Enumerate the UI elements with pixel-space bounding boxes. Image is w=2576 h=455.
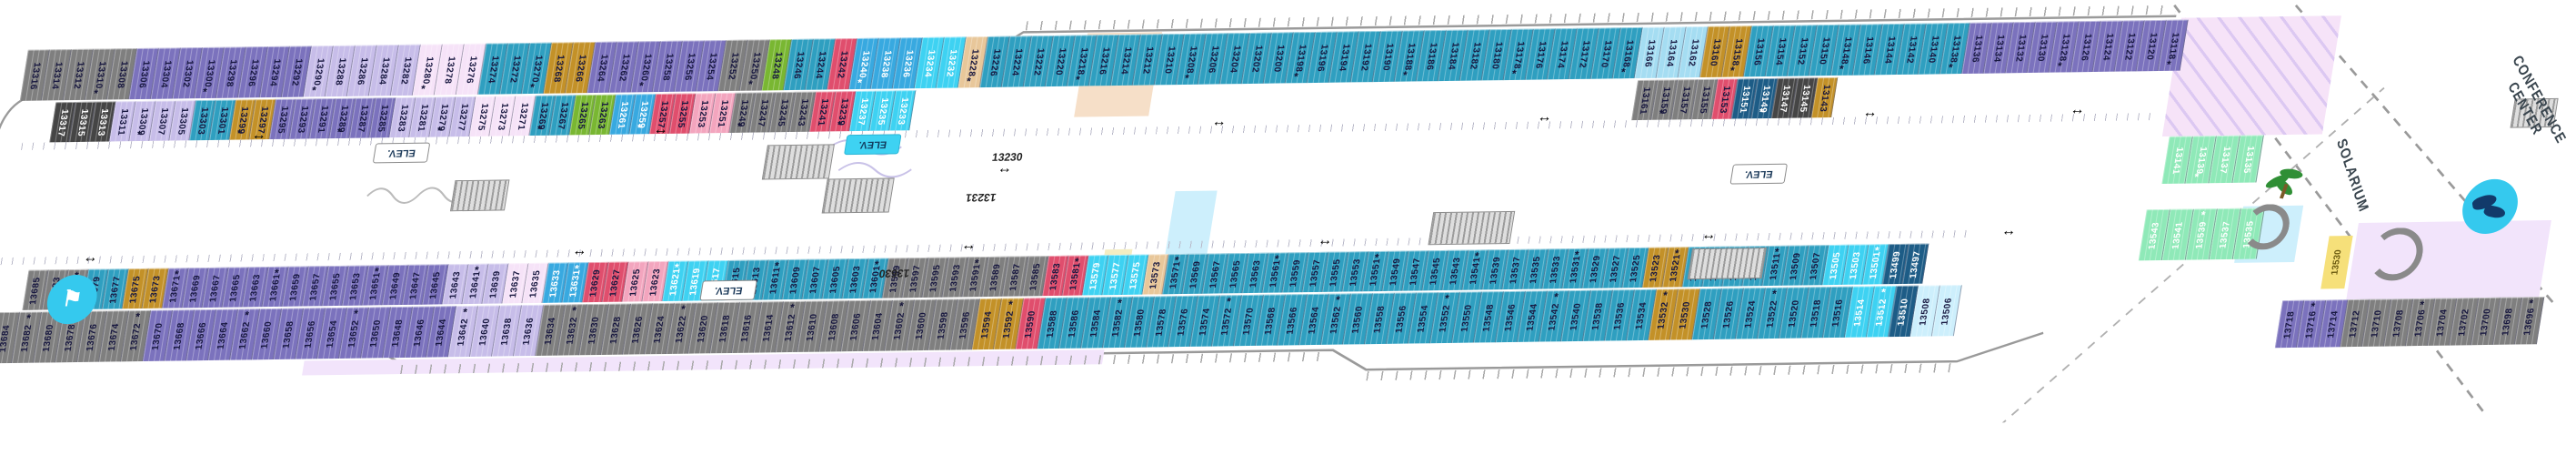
cabin-number: 13658 <box>281 320 296 349</box>
cabin-number: 13637 <box>507 269 522 298</box>
cabin-number: 13560 <box>1350 306 1365 334</box>
elevator-label[interactable]: ELEV. <box>844 134 902 155</box>
cabin-number: 13633 <box>547 269 562 298</box>
area-block <box>2162 15 2341 136</box>
cabin-number: 13647 <box>407 271 422 299</box>
cabin-number: 13676 <box>85 323 99 351</box>
stairs-icon[interactable] <box>450 179 510 211</box>
cabin-number: 13507 <box>1808 252 1822 280</box>
cabin-number: 13535 <box>1528 256 1542 284</box>
cabin-number: 13532 <box>1656 301 1670 329</box>
cabin-number: 13145 <box>1797 85 1811 113</box>
double-arrow-icon: ↔ <box>2000 224 2018 238</box>
cabin-number: 13710 <box>2370 309 2384 338</box>
cabin-number: 13578 <box>1154 308 1168 337</box>
cabin-number: 13563 <box>1248 259 1262 288</box>
cabin-number: 13552 <box>1438 304 1452 332</box>
cabin-number: 13659 <box>287 273 302 301</box>
cabin-number: 13505 <box>1828 251 1842 279</box>
sofa-bed-star-icon: * <box>1620 66 1627 78</box>
cabin-number: 13512 <box>1874 298 1889 327</box>
cabin-number: 13616 <box>739 314 754 342</box>
cabin-number: 13509 <box>1788 252 1802 280</box>
cabin-number: 13251 <box>715 99 729 127</box>
cabin-number: 13146 <box>1860 36 1875 65</box>
sofa-bed-star-icon: * <box>353 308 359 320</box>
cabin-number: 13190 <box>1380 43 1395 71</box>
cabin-number: 13303 <box>195 106 209 135</box>
cabin-number: 13634 <box>543 317 557 345</box>
cabin-number: 13174 <box>1555 40 1569 68</box>
cabin-number: 13278 <box>442 56 456 84</box>
cabin-number: 13538 <box>1590 302 1605 330</box>
sofa-bed-star-icon: * <box>1335 294 1341 307</box>
sofa-bed-star-icon: * <box>202 86 208 98</box>
cabin-number: 13677 <box>107 276 122 304</box>
cabin-number: 13682 <box>19 324 34 352</box>
cabin-number: 13140 <box>1926 35 1940 64</box>
cabin-number: 13238 <box>878 50 893 78</box>
cabin-number: 13576 <box>1176 308 1190 336</box>
cabin-number: 13663 <box>247 273 262 301</box>
cabin-number: 13150 <box>1817 36 1831 65</box>
cabin-number: 13242 <box>835 50 849 78</box>
cabin-number: 13566 <box>1285 307 1299 335</box>
cabin-number: 13308 <box>115 61 129 89</box>
cabin-number: 13510 <box>1896 298 1910 326</box>
cabin-number: 13564 <box>1307 306 1321 334</box>
cabin-number: 13506 <box>1940 298 1954 326</box>
cabin-number: 13120 <box>2144 32 2159 60</box>
sofa-bed-star-icon: * <box>1511 67 1518 80</box>
cabin-number: 13649 <box>387 271 402 299</box>
cabin-number: 13654 <box>325 319 339 348</box>
cabin-number: 13144 <box>1882 35 1897 64</box>
bather-glyph <box>2482 205 2507 219</box>
cabin-number: 13192 <box>1358 43 1373 71</box>
cabin-number: 13624 <box>652 315 667 343</box>
deck-plan-image: 1353013316133141331213310*13308133061330… <box>0 0 2576 455</box>
cabin-number: 13266 <box>573 54 587 82</box>
cabin-number: 13300 <box>202 59 216 87</box>
cabin-number: 13263 <box>595 101 609 129</box>
cabin-number: 13565 <box>1228 259 1242 288</box>
cabin-number: 13604 <box>870 312 885 340</box>
cabin-number: 13708 <box>2391 309 2406 338</box>
cabin-number: 13680 <box>41 324 55 352</box>
double-arrow-icon: ↔ <box>251 128 268 143</box>
cabin-number: 13593 <box>947 264 962 292</box>
cabin-number: 13698 <box>2501 308 2515 336</box>
cabin-number: 13122 <box>2122 33 2137 61</box>
cabin-number: 13260 <box>638 53 653 81</box>
sofa-bed-star-icon: * <box>789 301 796 314</box>
cabin-number: 13240 <box>857 50 871 78</box>
cabin-number: 13196 <box>1315 44 1329 72</box>
cabin-number: 13316 <box>27 62 42 90</box>
cabin-number: 13696 <box>2522 308 2537 336</box>
cabin-number: 13653 <box>347 272 362 300</box>
cabin-number: 13594 <box>979 310 994 339</box>
sofa-bed-star-icon: * <box>1117 297 1123 309</box>
elevator-label[interactable]: ELEV. <box>1729 164 1788 185</box>
cabin-number: 13628 <box>608 316 623 344</box>
cabin-number: 13609 <box>787 266 802 294</box>
cabin-number: 13574 <box>1198 308 1212 336</box>
cabin-number: 13277 <box>455 103 469 131</box>
cabin-number: 13534 <box>1634 301 1649 329</box>
cabin-number: 13312 <box>71 61 85 89</box>
cabin-number: 13539 <box>2194 221 2209 249</box>
cabin-number: 13208 <box>1184 45 1198 74</box>
cabin-number: 13525 <box>1628 254 1642 282</box>
cabin-number: 13184 <box>1446 42 1460 70</box>
cabin-number: 13518 <box>1809 299 1823 328</box>
cabin-number: 13669 <box>187 274 202 302</box>
cabin-number: 13662 <box>237 321 252 349</box>
cabin-number: 13660 <box>259 320 274 349</box>
cabin-number: 13583 <box>1047 262 1062 290</box>
sofa-bed-star-icon: * <box>135 310 141 323</box>
double-arrow-icon: ↔ <box>1537 110 1554 125</box>
cabin-number: 13636 <box>521 317 536 345</box>
cabin-number: 13623 <box>647 268 662 296</box>
cabin-number: 13603 <box>847 265 862 293</box>
cabin-number: 13625 <box>627 268 642 297</box>
cabin-number: 13220 <box>1053 47 1067 76</box>
cabin-number: 13216 <box>1097 46 1111 75</box>
cabin-number: 13627 <box>607 268 622 297</box>
sofa-bed-star-icon: * <box>1729 65 1736 77</box>
sofa-bed-star-icon: * <box>1293 70 1299 83</box>
cabin-number: 13170 <box>1599 40 1613 68</box>
cabin-number: 13602 <box>892 312 907 340</box>
cabin-number: 13706 <box>2413 308 2428 337</box>
cabin-number: 13246 <box>791 51 806 79</box>
sofa-bed-star-icon: * <box>1771 288 1778 300</box>
cabin-number: 13315 <box>75 108 89 136</box>
sofa-bed-star-icon: * <box>420 83 426 96</box>
cabin-number: 13296 <box>246 59 260 87</box>
cabin-number: 13252 <box>726 52 740 80</box>
cabin-number: 13642 <box>456 318 470 346</box>
cabin-number: 13635 <box>527 269 542 298</box>
cabin-number: 13137 <box>2217 146 2231 174</box>
double-arrow-icon: ↔ <box>571 244 588 258</box>
cabin-number: 13554 <box>1416 305 1430 333</box>
cabin-number: 13575 <box>1128 261 1142 289</box>
cabin-number: 13176 <box>1533 41 1548 69</box>
cabin-number: 13639 <box>487 270 502 298</box>
double-arrow-icon: ↔ <box>960 238 977 253</box>
cabin-number: 13313 <box>95 108 109 136</box>
cabin-number: 13539 <box>1488 256 1502 284</box>
cabin-number: 13638 <box>499 318 514 346</box>
sofa-bed-star-icon: * <box>1662 289 1669 302</box>
double-arrow-icon: ↔ <box>2069 103 2086 117</box>
cabin-number: 13652 <box>346 319 361 348</box>
cabin-number: 13589 <box>987 263 1002 291</box>
cabin-number: 13608 <box>827 313 841 341</box>
cabin-number: 13626 <box>630 316 645 344</box>
cabin-number: 13537 <box>1508 256 1522 284</box>
cabin-number: 13186 <box>1424 42 1438 70</box>
sofa-bed-star-icon: * <box>747 78 754 91</box>
cabin-number: 13228 <box>966 48 980 76</box>
cabin-number: 13142 <box>1904 35 1919 64</box>
cabin-number: 13218 <box>1075 47 1089 76</box>
cabin-number: 13292 <box>289 58 304 86</box>
cabin-number: 13285 <box>375 105 389 133</box>
cabin-number: 13294 <box>267 58 282 86</box>
cabin-number: 13667 <box>207 274 222 302</box>
cabin-number: 13607 <box>807 266 822 294</box>
cabin-number: 13158 <box>1729 38 1744 66</box>
sofa-bed-star-icon: * <box>25 312 32 325</box>
cabin-number: 13234 <box>922 49 937 77</box>
cabin-number: 13580 <box>1132 308 1147 337</box>
cabin-number: 13254 <box>704 52 718 80</box>
sofa-bed-star-icon: * <box>2193 170 2200 183</box>
sofa-bed-star-icon: * <box>462 306 468 318</box>
cabin-number: 13499 <box>1888 250 1902 278</box>
cabin-number: 13643 <box>447 270 462 298</box>
cabin-number: 13272 <box>507 55 522 83</box>
sofa-bed-star-icon: * <box>2166 58 2172 71</box>
cabin-number: 13559 <box>1288 259 1302 288</box>
cabin-number: 13314 <box>49 62 64 90</box>
cabin-number: 13655 <box>327 272 342 300</box>
cabin-number: 13664 <box>216 321 230 349</box>
cabin-number: 13265 <box>575 101 589 129</box>
cabin-number: 13273 <box>495 103 509 131</box>
cabin-number: 13172 <box>1577 40 1591 68</box>
cabin-number: 13306 <box>136 60 151 88</box>
cabin-number: 13562 <box>1328 306 1343 334</box>
cabin-number: 13261 <box>615 101 629 129</box>
double-arrow-icon: ↔ <box>82 251 99 266</box>
cabin-number: 13548 <box>1481 304 1496 332</box>
cabin-number: 13526 <box>1721 300 1736 329</box>
cabin-number: 13497 <box>1908 250 1922 278</box>
cabin-number: 13130 <box>2035 34 2050 62</box>
double-arrow-icon: ↔ <box>1317 234 1334 248</box>
cabin-number: 13247 <box>755 99 769 127</box>
cabin-number: 13503 <box>1848 251 1862 279</box>
cabin-number: 13202 <box>1249 45 1264 73</box>
cabin-number: 13600 <box>914 311 928 339</box>
cabin-number: 13674 <box>106 323 121 351</box>
cabin-number: 13290 <box>311 57 326 86</box>
cabin-number: 13595 <box>927 264 942 292</box>
cabin-number: 13718 <box>2282 310 2297 339</box>
cabin-number: 13666 <box>194 321 208 349</box>
cabin-number: 13304 <box>158 60 173 88</box>
cabin-number: 13250 <box>747 52 762 80</box>
cabin-number: 13533 <box>1548 256 1562 284</box>
cabin-number: 13544 <box>1525 303 1539 331</box>
cabin-number: 13224 <box>1009 48 1024 76</box>
sofa-bed-star-icon: * <box>571 304 577 317</box>
cabin-number: 13212 <box>1140 46 1155 75</box>
cabin-number: 13587 <box>1007 263 1022 291</box>
cabin-number: 13286 <box>355 57 369 86</box>
cabin-number: 13520 <box>1787 299 1801 328</box>
cabin-number: 13582 <box>1110 308 1125 337</box>
cabin-number: 13166 <box>1642 39 1657 67</box>
cabin-number: 13148 <box>1839 36 1853 65</box>
cabin-number: 13672 <box>128 322 143 350</box>
cabin-number: 13508 <box>1918 298 1932 326</box>
cabin-number: 13712 <box>2348 309 2362 338</box>
cabin-number: 13255 <box>675 100 689 128</box>
cabin-number: 13577 <box>1108 261 1122 289</box>
sofa-bed-star-icon: * <box>680 303 687 316</box>
palm-tree-icon <box>2262 167 2308 205</box>
cabin-number: 13152 <box>1795 37 1809 66</box>
cabin-number: 13310 <box>93 61 107 89</box>
cabin-number: 13301 <box>215 106 229 135</box>
cabin-number: 13598 <box>936 311 950 339</box>
sofa-bed-star-icon: * <box>2200 208 2206 221</box>
cabin-number: 13241 <box>815 98 829 126</box>
cabin-number: 13317 <box>55 108 69 136</box>
stairs-icon[interactable] <box>822 177 895 213</box>
stairs-icon[interactable] <box>1428 211 1515 245</box>
cabin-number: 13267 <box>555 102 569 130</box>
cabin-number: 13305 <box>175 107 189 136</box>
cabin-number: 13673 <box>147 275 162 303</box>
cabin-number: 13684 <box>0 324 12 352</box>
cabin-number: 13143 <box>1817 84 1831 112</box>
cabin-number: 13293 <box>295 106 309 134</box>
cabin-number: 13287 <box>355 105 369 133</box>
cabin-number: 13245 <box>775 98 789 126</box>
elevator-label[interactable]: ELEV. <box>373 143 431 164</box>
cabin-number: 13567 <box>1208 260 1222 288</box>
cabin-number: 13618 <box>717 314 732 342</box>
cabin-number: 13704 <box>2435 308 2450 337</box>
cabin-number: 13153 <box>1717 86 1731 114</box>
cabin-number: 13236 <box>900 49 915 77</box>
cabin-number: 13529 <box>1588 255 1602 283</box>
cabin-number: 13542 <box>1547 303 1561 331</box>
sofa-bed-star-icon: * <box>244 308 250 321</box>
cabin-number: 13155 <box>1697 86 1711 114</box>
double-arrow-icon: ↔ <box>1700 228 1718 243</box>
cabin-number: 13646 <box>412 318 426 347</box>
cabin-number: 13610 <box>805 313 819 341</box>
sofa-bed-star-icon: * <box>1007 298 1014 311</box>
cabin-number: 13685 <box>27 277 42 305</box>
cabin-number: 13657 <box>307 273 322 301</box>
sofa-bed-star-icon: * <box>1444 292 1450 305</box>
cabin-number: 13644 <box>434 318 448 347</box>
flag-glyph: ⚑ <box>61 288 84 310</box>
ship-hull-group: 1353013316133141331213310*13308133061330… <box>0 0 2576 451</box>
cabin-number: 13522 <box>1765 299 1779 328</box>
cabin-number: 13283 <box>395 104 409 132</box>
cabin-number: 13237 <box>855 97 869 126</box>
cabin-number: 13244 <box>813 51 827 79</box>
cabin-number: 13568 <box>1263 307 1278 335</box>
cabin-number: 13650 <box>368 319 383 348</box>
cabin-number: 13168 <box>1620 39 1635 67</box>
cabin-number: 13147 <box>1777 85 1791 113</box>
sofa-bed-star-icon: * <box>529 81 536 94</box>
corridor-cabin-number: 13630 <box>878 267 911 279</box>
cabin-number: 13262 <box>616 54 631 82</box>
cabin-number: 13640 <box>477 318 492 346</box>
cabin-number: 13572 <box>1219 308 1234 336</box>
cabin-number: 13128 <box>2057 34 2071 62</box>
cabin-number: 13235 <box>875 97 889 126</box>
cabin-number: 13702 <box>2457 308 2471 337</box>
cabin-number: 13270 <box>529 55 544 83</box>
cabin-number: 13549 <box>1388 258 1402 286</box>
sofa-bed-star-icon: * <box>638 79 645 92</box>
cabin-number: 13288 <box>333 57 347 86</box>
stairs-icon[interactable] <box>762 144 835 179</box>
cabin-number: 13126 <box>2079 33 2093 61</box>
cabin-number: 13275 <box>475 103 489 131</box>
cabin-number: 13536 <box>1612 302 1627 330</box>
cabin-number: 13295 <box>275 106 289 134</box>
cabin-number: 13541 <box>2170 221 2185 249</box>
cabin-number: 13632 <box>565 317 579 345</box>
cabin-number: 13523 <box>1648 254 1662 282</box>
cabin-number: 13606 <box>848 312 863 340</box>
cabin-number: 13248 <box>769 51 784 79</box>
cabin-number: 13156 <box>1751 37 1766 66</box>
cabin-number: 13134 <box>1991 35 2006 63</box>
cabin-number: 13136 <box>1970 35 1984 63</box>
double-arrow-icon: ↔ <box>653 123 670 137</box>
cabin-number: 13550 <box>1459 304 1474 332</box>
cabin-number: 13135 <box>2240 146 2255 174</box>
cabin-number: 13151 <box>1737 86 1751 114</box>
sofa-bed-star-icon: * <box>1184 72 1190 85</box>
double-arrow-icon: ↔ <box>997 162 1014 177</box>
cabin-number: 13675 <box>127 275 142 303</box>
cabin-number: 13555 <box>1328 258 1342 287</box>
cabin-number: 13573 <box>1148 261 1162 289</box>
cabin-number: 13557 <box>1308 258 1322 287</box>
elevator-label[interactable]: ELEV. <box>699 280 757 301</box>
cabin-number: 13256 <box>682 53 697 81</box>
cabin-number: 13670 <box>150 322 165 350</box>
cabin-number: 13154 <box>1773 37 1788 66</box>
cabin-number: 13716 <box>2304 310 2319 339</box>
cabin-number: 13700 <box>2479 308 2493 336</box>
sofa-bed-star-icon: * <box>93 87 99 100</box>
sofa-bed-star-icon: * <box>898 299 905 312</box>
cabin-number: 13543 <box>1448 257 1462 285</box>
sofa-bed-star-icon: * <box>1553 290 1559 303</box>
cabin-number: 13281 <box>415 104 429 132</box>
cabin-number: 13592 <box>1001 310 1016 339</box>
cabin-number: 13258 <box>660 53 675 81</box>
stairs-icon[interactable] <box>1688 248 1768 279</box>
cabin-number: 13546 <box>1503 303 1518 331</box>
cabin-number: 13138 <box>1948 35 1962 63</box>
cabin-number: 13243 <box>795 98 809 126</box>
sofa-bed-star-icon: * <box>1880 286 1887 298</box>
cabin-number: 13530 <box>1678 301 1692 329</box>
sofa-bed-star-icon: * <box>1402 69 1408 82</box>
sofa-bed-star-icon: * <box>1226 295 1232 308</box>
cabin-number: 13569 <box>1188 260 1202 288</box>
